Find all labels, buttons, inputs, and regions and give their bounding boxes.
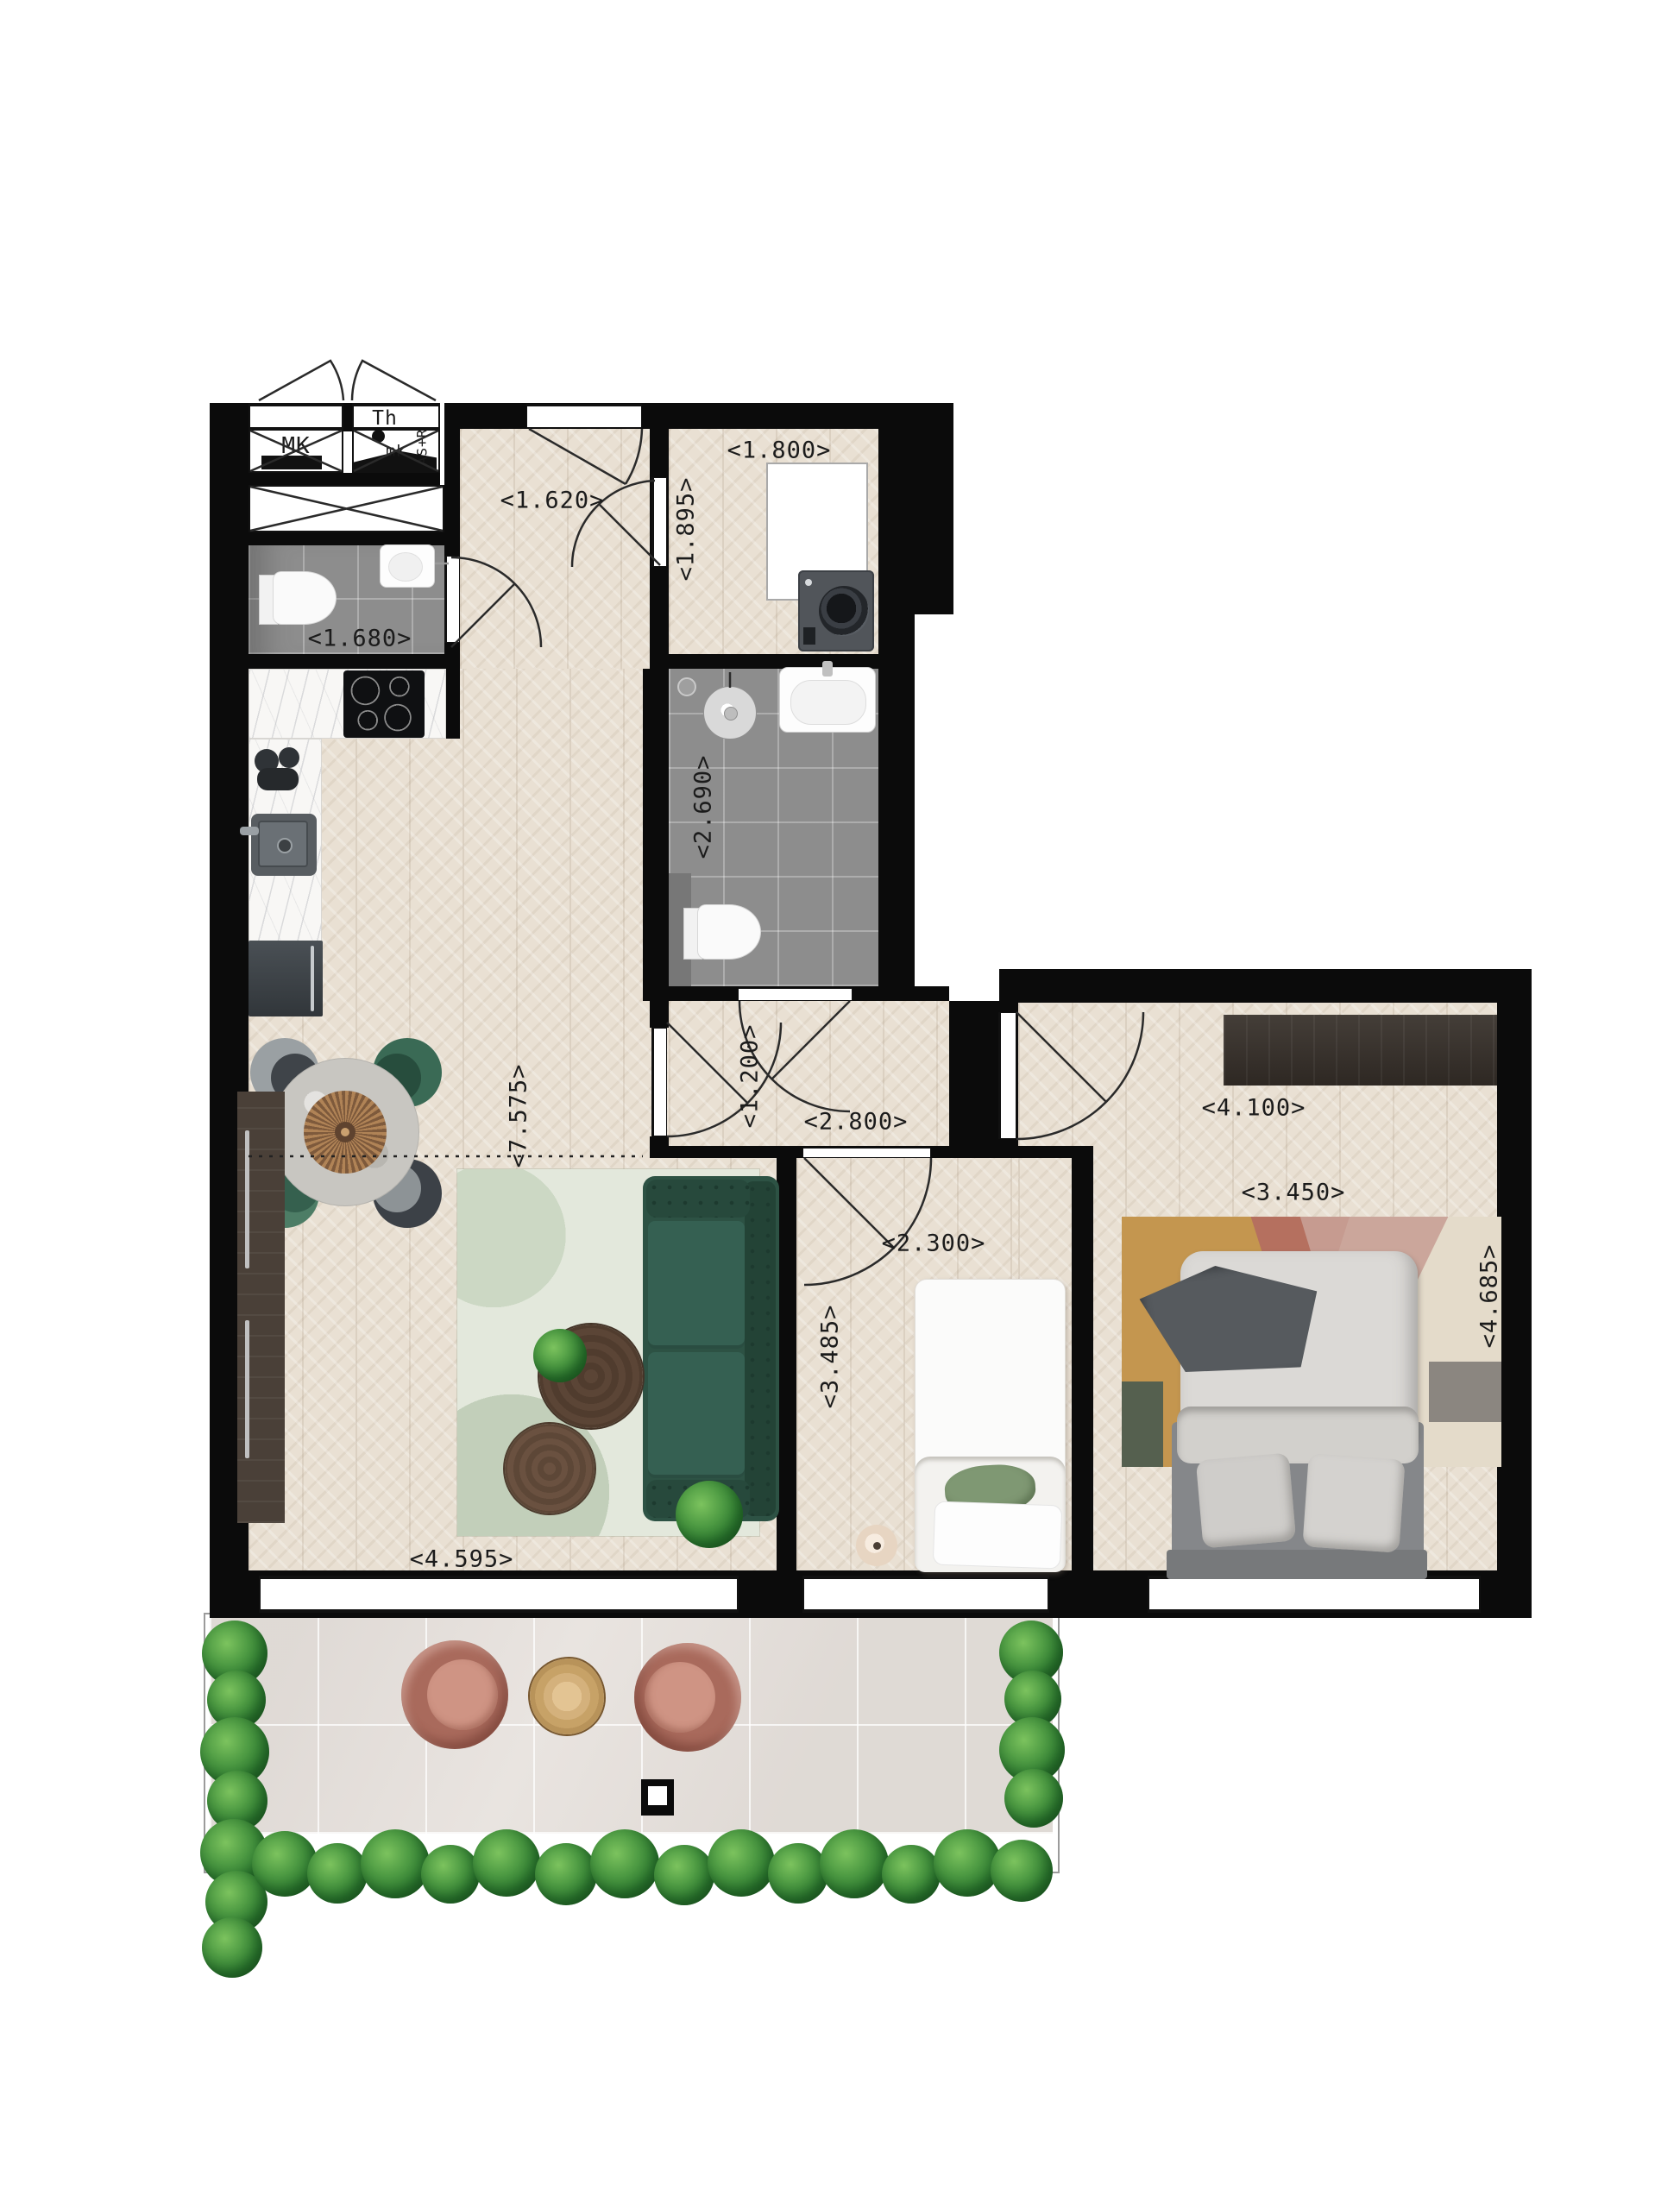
entrance-door-swing — [529, 429, 642, 484]
dim-bedroom2-length: <4.100> — [1202, 1095, 1306, 1122]
toilet-door-swing — [451, 557, 541, 647]
dim-hall-width: <2.800> — [804, 1109, 909, 1136]
dim-bedroom2-width: <3.450> — [1242, 1180, 1346, 1206]
dim-hall-depth: <1.200> — [737, 1024, 764, 1129]
dim-bedroom2-depth: <4.685> — [1476, 1244, 1503, 1349]
bedroom1-door-swing — [804, 1158, 931, 1285]
floorplan-canvas: MK Th mk AS+R — [0, 0, 1680, 2209]
dim-bedroom1-depth: <3.485> — [817, 1305, 844, 1409]
dim-entry-hall-width: <1.620> — [500, 488, 605, 514]
closet-x-cross — [250, 431, 443, 531]
dim-living-width: <4.595> — [410, 1546, 514, 1573]
door-swings-overlay — [0, 0, 1680, 2209]
dim-toilet-width: <1.680> — [308, 626, 412, 652]
dim-laundry-depth: <1.895> — [673, 477, 700, 582]
dim-bedroom1-width: <2.300> — [882, 1230, 986, 1257]
hall-door-swing — [667, 1023, 781, 1136]
dim-bathroom-depth: <2.690> — [690, 755, 717, 859]
bedroom2-door-swing — [1016, 1012, 1143, 1139]
dim-laundry-width: <1.800> — [727, 437, 832, 464]
closet-door-swing — [259, 361, 436, 400]
dim-living-length: <7.575> — [506, 1064, 532, 1168]
